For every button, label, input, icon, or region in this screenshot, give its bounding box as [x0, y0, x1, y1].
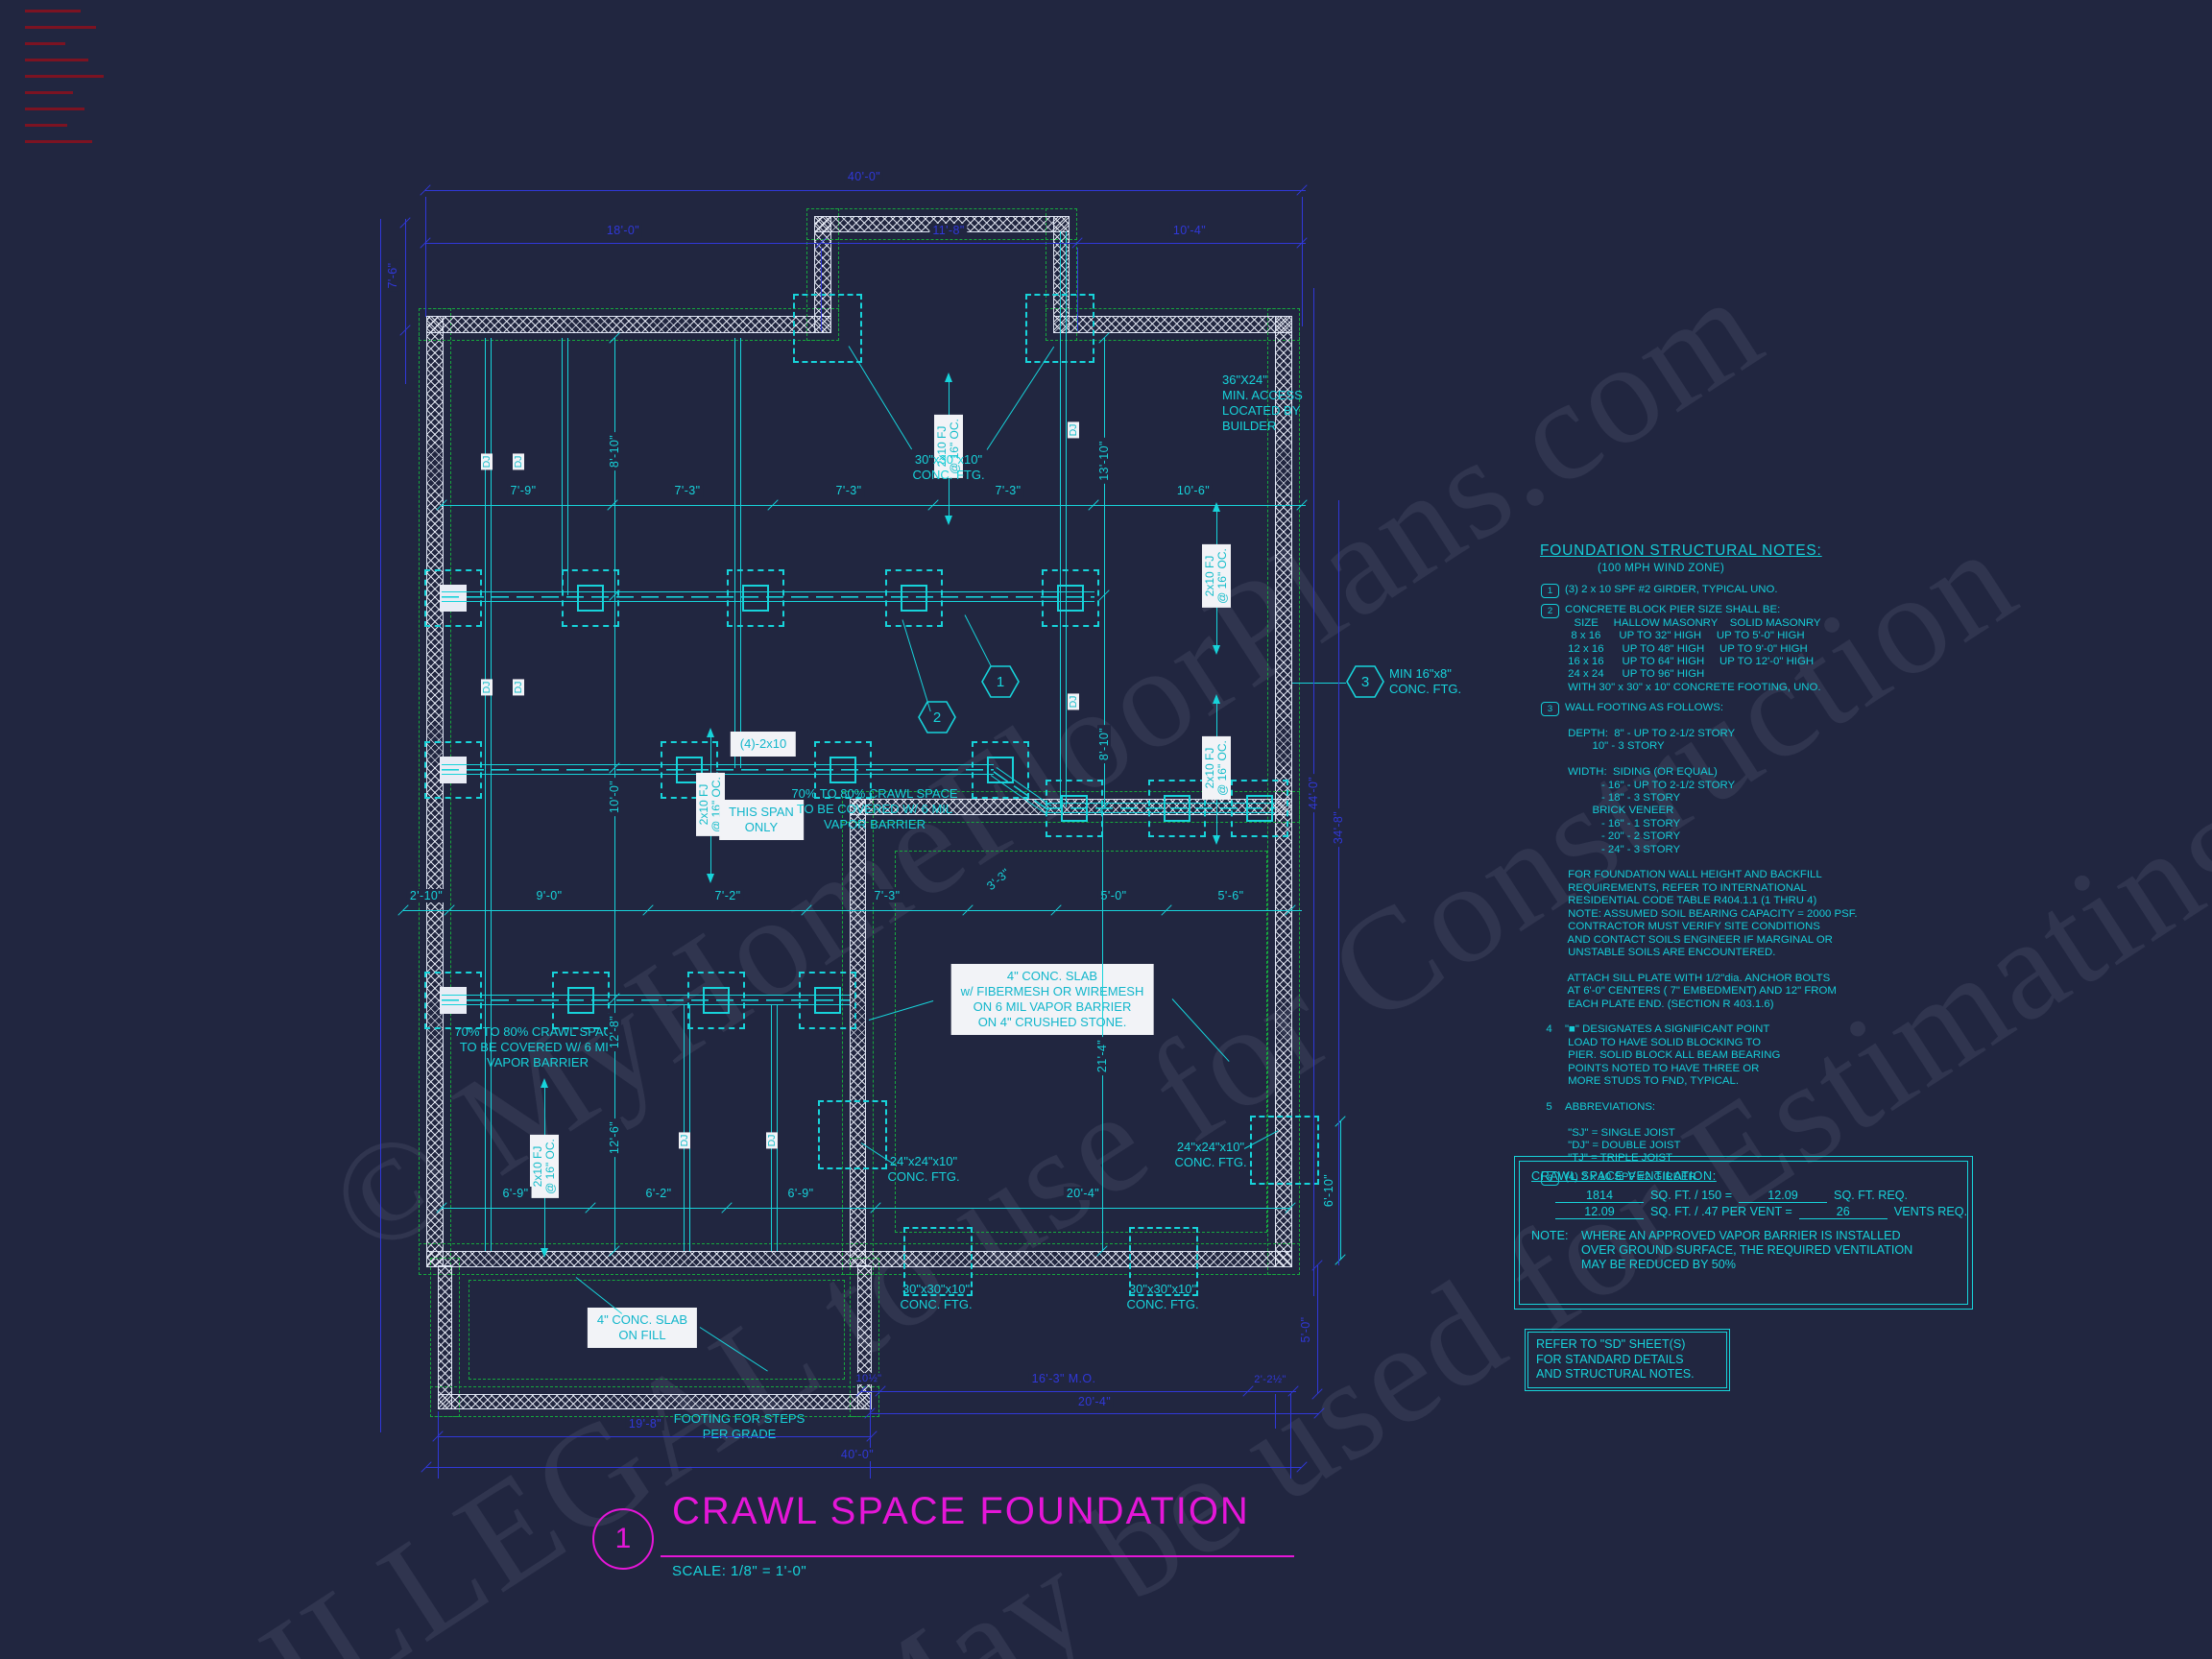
note-text: CONTRACTOR MUST VERIFY SITE CONDITIONS — [1565, 921, 1820, 932]
note-text: POINTS NOTED TO HAVE THREE OR — [1565, 1063, 1759, 1074]
note-line: POINTS NOTED TO HAVE THREE OR — [1565, 1063, 2001, 1075]
dimension-label: 40'-0" — [845, 170, 883, 183]
sqft-req-value: 12.09 — [1739, 1189, 1827, 1203]
footing-24-note: 24"x24"x10" CONC. FTG. — [1174, 1140, 1246, 1170]
dimension-line — [1102, 813, 1103, 1251]
note-text: - 24" - 3 STORY — [1565, 844, 1680, 855]
note-line: ONLY — [729, 820, 794, 835]
note-line: CONC. FTG. — [1389, 682, 1461, 697]
note-line: CONC. FTG. — [1174, 1155, 1246, 1170]
blueprint-sheet: © MyHomeFloorPlans.com ILLEGAL to use fo… — [0, 0, 2212, 1659]
note-text: 24 x 24 UP TO 96" HIGH — [1565, 668, 1704, 680]
note-line: TO BE COVERED W/ 6 MIL — [791, 802, 957, 817]
dimension-label: 2'-10" — [407, 889, 445, 902]
dimension-label: 44'-0" — [1307, 774, 1320, 812]
note-line: 30"x30"x10" — [900, 1282, 972, 1297]
plot-mark — [25, 10, 81, 12]
note-text: 12 x 16 UP TO 48" HIGH UP TO 9'-0" HIGH — [1565, 643, 1808, 655]
dimension-label: 5'-6" — [1215, 889, 1247, 902]
girder-size-tag: (4)-2x10 — [731, 732, 796, 757]
note-line: BUILDER — [1222, 419, 1303, 434]
arrow-up-icon — [541, 1078, 548, 1088]
note-text: "■" DESIGNATES A SIGNIFICANT POINT — [1565, 1023, 1769, 1035]
arrow-up-icon — [707, 728, 714, 737]
note-line: CONC. FTG. — [887, 1169, 959, 1185]
dimension-label: 19'-8" — [626, 1417, 664, 1431]
slab-on-fill-note-box: 4" CONC. SLAB ON FILL — [588, 1308, 697, 1348]
footing-30-note: 30"x30"x10" CONC. FTG. — [912, 452, 984, 483]
note-line: 70% TO 80% CRAWL SPACE — [454, 1024, 620, 1040]
dimension-label: 20'-4" — [1075, 1395, 1114, 1408]
note-line: CONC. FTG. — [900, 1297, 972, 1312]
foundation-wall-slab-left — [850, 799, 866, 1267]
note-text: CONCRETE BLOCK PIER SIZE SHALL BE: — [1565, 604, 1780, 615]
dimension-label: 10'-4" — [1170, 224, 1209, 237]
dimension-label: 12'-6" — [608, 1118, 621, 1157]
notes-subtitle: (100 MPH WIND ZONE) — [1598, 563, 2001, 574]
sd-line: REFER TO "SD" SHEET(S) — [1536, 1337, 1719, 1353]
dimension-label: 7'-3" — [672, 484, 704, 497]
calc-text: SQ. FT. REQ. — [1834, 1189, 1908, 1202]
note-line: - 18" - 3 STORY — [1565, 792, 2001, 805]
callout-hexagon-2: 2 — [917, 700, 957, 734]
dimension-label: 34'-8" — [1332, 808, 1345, 847]
joist-label: 2x10 FJ@ 16" OC. — [530, 1135, 559, 1198]
calc-text: VENTS REQ. — [1894, 1205, 1967, 1218]
note-line: "DJ" = DOUBLE JOIST — [1565, 1140, 2001, 1152]
note-line — [1565, 856, 2001, 869]
note-line: RESIDENTIAL CODE TABLE R404.1.1 (1 THRU … — [1565, 895, 2001, 907]
note-line: MIN. ACCESS — [1222, 388, 1303, 403]
note-line: THIS SPAN — [729, 805, 794, 820]
note-line: WHERE AN APPROVED VAPOR BARRIER IS INSTA… — [1581, 1229, 1912, 1243]
note-line: 24"x24"x10" — [887, 1154, 959, 1169]
dimension-label: 8'-10" — [1097, 725, 1111, 763]
dimension-label: 7'-3" — [872, 889, 903, 902]
dimension-line — [1338, 500, 1339, 1265]
dimension-label: 6'-2" — [643, 1187, 675, 1200]
note-text: DEPTH: 8" - UP TO 2-1/2 STORY — [1565, 728, 1735, 739]
note-line: MORE STUDS TO FND, TYPICAL. — [1565, 1075, 2001, 1088]
note-line: 12 x 16 UP TO 48" HIGH UP TO 9'-0" HIGH — [1565, 643, 2001, 656]
plot-mark — [25, 42, 65, 45]
double-joist-tag: DJ — [1068, 422, 1079, 439]
sqft-value: 12.09 — [1555, 1205, 1644, 1219]
dimension-label: 6'-9" — [785, 1187, 817, 1200]
joist-label-line: @ 16" OC. — [1216, 740, 1229, 796]
joist-line — [771, 1005, 778, 1251]
note-text: 8 x 16 UP TO 32" HIGH UP TO 5'-0" HIGH — [1565, 630, 1805, 641]
plot-mark — [25, 108, 84, 110]
calc-text: SQ. FT. / .47 PER VENT = — [1650, 1205, 1792, 1218]
plot-mark — [25, 124, 67, 127]
girder-beam — [442, 591, 1094, 602]
note-line: - 20" - 2 STORY — [1565, 830, 2001, 843]
dimension-line — [442, 505, 1306, 506]
dimension-line — [405, 219, 406, 384]
note-line: PER GRADE — [674, 1427, 805, 1442]
dimension-label: 6'-10" — [1322, 1171, 1335, 1210]
note-line: WITH 30" x 30" x 10" CONCRETE FOOTING, U… — [1565, 682, 2001, 694]
plot-mark — [25, 75, 104, 78]
dimension-line — [1340, 1121, 1341, 1260]
note-line: 24 x 24 UP TO 96" HIGH — [1565, 668, 2001, 681]
extension-line — [438, 1411, 439, 1479]
note-text: EACH PLATE END. (SECTION R 403.1.6) — [1565, 998, 1774, 1010]
double-joist-tag: DJ — [481, 680, 493, 696]
girder-beam — [442, 995, 850, 1005]
note-line: MAY BE REDUCED BY 50% — [1581, 1258, 1912, 1272]
footing-30-note: 30"x30"x10" CONC. FTG. — [1126, 1282, 1198, 1312]
girder-beam — [1046, 803, 1275, 813]
note-line: CONTRACTOR MUST VERIFY SITE CONDITIONS — [1565, 921, 2001, 933]
note-line: WIDTH: SIDING (OR EQUAL) — [1565, 766, 2001, 779]
note-marker: 4 — [1541, 1023, 1557, 1036]
crawl-cover-note: 70% TO 80% CRAWL SPACE TO BE COVERED W/ … — [791, 786, 957, 832]
note-line: AT 6'-0" CENTERS ( 7" EMBEDMENT) AND 12"… — [1565, 985, 2001, 998]
crawl-space-ventilation-box: CRAWL SPACE VENTILATION: 1814SQ. FT. / 1… — [1514, 1156, 1973, 1310]
arrow-down-icon — [945, 516, 952, 525]
drawing-title: CRAWL SPACE FOUNDATION — [672, 1490, 1250, 1533]
dimension-label: 8'-10" — [608, 432, 621, 470]
note-text: 16 x 16 UP TO 64" HIGH UP TO 12'-0" HIGH — [1565, 656, 1814, 667]
crawl-cover-note: 70% TO 80% CRAWL SPACE TO BE COVERED W/ … — [454, 1024, 620, 1070]
extension-line — [1302, 197, 1303, 326]
sd-sheet-reference-box: REFER TO "SD" SHEET(S) FOR STANDARD DETA… — [1525, 1329, 1730, 1391]
dimension-line — [1317, 1265, 1318, 1394]
note-line: 16 x 16 UP TO 64" HIGH UP TO 12'-0" HIGH — [1565, 656, 2001, 668]
dimension-label: 7'-6" — [386, 260, 399, 292]
note-line: 4"■" DESIGNATES A SIGNIFICANT POINT — [1565, 1023, 2001, 1036]
dimension-label: 13'-10" — [1097, 438, 1111, 484]
leader-line — [987, 347, 1055, 450]
dimension-label: 40'-0" — [838, 1448, 877, 1461]
double-joist-tag: DJ — [513, 680, 524, 696]
leader-line — [902, 619, 931, 711]
leader-line — [849, 346, 913, 449]
note-line: DEPTH: 8" - UP TO 2-1/2 STORY — [1565, 728, 2001, 740]
joist-label: 2x10 FJ@ 16" OC. — [1202, 736, 1231, 800]
note-line: TO BE COVERED W/ 6 MIL — [454, 1040, 620, 1055]
joist-label-line: @ 16" OC. — [544, 1139, 557, 1194]
dimension-label: 16'-3" M.O. — [1029, 1372, 1099, 1385]
note-line: LOCATED BY — [1222, 403, 1303, 419]
note-text: RESIDENTIAL CODE TABLE R404.1.1 (1 THRU … — [1565, 895, 1816, 906]
dimension-label: 10'-6" — [1174, 484, 1213, 497]
note-marker: 2 — [1541, 604, 1559, 618]
dimension-label: 20'-4" — [1064, 1187, 1102, 1200]
note-line: UNSTABLE SOILS ARE ENCOUNTERED. — [1565, 947, 2001, 959]
joist-line — [734, 338, 741, 768]
note-line: PIER. SOLID BLOCK ALL BEAM BEARING — [1565, 1049, 2001, 1062]
note-line: 30"x30"x10" — [1126, 1282, 1198, 1297]
dimension-line — [425, 190, 1306, 191]
double-joist-tag: DJ — [679, 1133, 690, 1149]
double-joist-tag: DJ — [766, 1133, 778, 1149]
footing-24-note: 24"x24"x10" CONC. FTG. — [887, 1154, 959, 1185]
note-line — [1565, 959, 2001, 972]
foundation-wall-top-left — [426, 316, 831, 333]
arrow-down-icon — [707, 874, 714, 883]
note-text: BRICK VENEER — [1565, 805, 1673, 816]
note-text: - 18" - 3 STORY — [1565, 792, 1680, 804]
dimension-label: 9'-0" — [534, 889, 565, 902]
joist-label-line: @ 16" OC. — [1216, 548, 1229, 604]
dimension-label: 6'-9" — [500, 1187, 532, 1200]
slab-note-line: w/ FIBERMESH OR WIREMESH — [961, 984, 1144, 999]
note-text: "SJ" = SINGLE JOIST — [1565, 1127, 1675, 1139]
extension-line — [1275, 1394, 1276, 1429]
joist-label: 2x10 FJ@ 16" OC. — [1202, 544, 1231, 608]
access-note: 36"X24" MIN. ACCESS LOCATED BY BUILDER — [1222, 373, 1303, 434]
slab-note-line: 4" CONC. SLAB — [597, 1312, 687, 1328]
sd-box-inner: REFER TO "SD" SHEET(S) FOR STANDARD DETA… — [1527, 1332, 1727, 1388]
joist-line — [1060, 231, 1067, 807]
vents-req-value: 26 — [1799, 1205, 1887, 1219]
note-line: FOOTING FOR STEPS — [674, 1411, 805, 1427]
dimension-label: 2'-2½" — [1251, 1374, 1288, 1385]
dimension-line — [438, 1436, 872, 1437]
dimension-line — [380, 219, 381, 1432]
note-line: - 16" - 1 STORY — [1565, 818, 2001, 830]
joist-line — [562, 338, 568, 595]
extension-line — [821, 248, 822, 331]
note-line: 8 x 16 UP TO 32" HIGH UP TO 5'-0" HIGH — [1565, 630, 2001, 642]
title-underline — [661, 1555, 1294, 1557]
dimension-label: 10½" — [854, 1373, 885, 1384]
note-line: ATTACH SILL PLATE WITH 1/2"dia. ANCHOR B… — [1565, 973, 2001, 985]
note-line: "SJ" = SINGLE JOIST — [1565, 1127, 2001, 1140]
note-text: - 16" - 1 STORY — [1565, 818, 1680, 829]
note-text: PIER. SOLID BLOCK ALL BEAM BEARING — [1565, 1049, 1780, 1061]
plot-mark — [25, 91, 73, 94]
dimension-label: 5'-0" — [1299, 1314, 1312, 1346]
footing-outline — [1250, 1116, 1319, 1185]
note-line: - 16" - UP TO 2-1/2 STORY — [1565, 780, 2001, 792]
note-line — [1565, 1114, 2001, 1126]
dimension-label: 7'-3" — [833, 484, 865, 497]
dimension-line — [442, 1208, 1290, 1209]
note-line: 10" - 3 STORY — [1565, 740, 2001, 753]
slab-note-line: ON 4" CRUSHED STONE. — [961, 1015, 1144, 1030]
callout-number: 3 — [1345, 664, 1385, 699]
note-text: FOR FOUNDATION WALL HEIGHT AND BACKFILL — [1565, 869, 1822, 880]
note-text: WALL FOOTING AS FOLLOWS: — [1565, 702, 1723, 713]
note-line: FOR FOUNDATION WALL HEIGHT AND BACKFILL — [1565, 869, 2001, 881]
note-line: NOTE: ASSUMED SOIL BEARING CAPACITY = 20… — [1565, 908, 2001, 921]
note-line: REQUIREMENTS, REFER TO INTERNATIONAL — [1565, 882, 2001, 895]
sd-line: AND STRUCTURAL NOTES. — [1536, 1367, 1719, 1382]
porch-wall-bottom — [438, 1394, 872, 1409]
ventilation-title: CRAWL SPACE VENTILATION: — [1531, 1169, 1956, 1183]
note-line: CONC. FTG. — [912, 468, 984, 483]
dimension-label: 7'-3" — [993, 484, 1024, 497]
footing-30-note: 30"x30"x10" CONC. FTG. — [900, 1282, 972, 1312]
note-line: LOAD TO HAVE SOLID BLOCKING TO — [1565, 1037, 2001, 1049]
callout-number: 1 — [980, 664, 1021, 699]
note-text: SIZE HALLOW MASONRY SOLID MASONRY — [1565, 617, 1820, 629]
note-line: - 24" - 3 STORY — [1565, 844, 2001, 856]
extension-line — [425, 197, 426, 317]
arrow-up-icon — [945, 373, 952, 382]
dimension-line — [425, 243, 1306, 244]
slab-note-line: ON 6 MIL VAPOR BARRIER — [961, 999, 1144, 1015]
double-joist-tag: DJ — [481, 454, 493, 470]
note-text: (3) 2 x 10 SPF #2 GIRDER, TYPICAL UNO. — [1565, 584, 1778, 595]
sqft-value: 1814 — [1555, 1189, 1644, 1203]
note-line: OVER GROUND SURFACE, THE REQUIRED VENTIL… — [1581, 1243, 1912, 1258]
arrow-down-icon — [1213, 835, 1220, 845]
calc-text: SQ. FT. / 150 = — [1650, 1189, 1732, 1202]
note-line: 36"X24" — [1222, 373, 1303, 388]
note-line: AND CONTACT SOILS ENGINEER IF MARGINAL O… — [1565, 934, 2001, 947]
dimension-label: 12'-8" — [608, 1013, 621, 1051]
joist-line — [485, 338, 492, 1251]
note-marker: 5 — [1541, 1101, 1557, 1114]
dimension-label: 11'-8" — [929, 224, 967, 237]
dimension-line — [403, 910, 1302, 911]
extension-line — [1290, 1394, 1291, 1479]
note-line: 24"x24"x10" — [1174, 1140, 1246, 1155]
note-line: 1(3) 2 x 10 SPF #2 GIRDER, TYPICAL UNO. — [1565, 584, 2001, 596]
note-line: 30"x30"x10" — [912, 452, 984, 468]
note-line: MIN 16"x8" — [1389, 666, 1461, 682]
note-text: AND CONTACT SOILS ENGINEER IF MARGINAL O… — [1565, 934, 1833, 946]
note-line: 2CONCRETE BLOCK PIER SIZE SHALL BE: — [1565, 604, 2001, 616]
note-text: - 16" - UP TO 2-1/2 STORY — [1565, 780, 1735, 791]
note-text: WITH 30" x 30" x 10" CONCRETE FOOTING, U… — [1565, 682, 1821, 693]
note-text: AT 6'-0" CENTERS ( 7" EMBEDMENT) AND 12"… — [1565, 985, 1837, 997]
callout-hexagon-3: 3 — [1345, 664, 1385, 699]
note-line: 3WALL FOOTING AS FOLLOWS: — [1565, 702, 2001, 714]
plot-mark — [25, 26, 96, 29]
arrow-down-icon — [1213, 645, 1220, 655]
sd-line: FOR STANDARD DETAILS — [1536, 1353, 1719, 1368]
ventilation-calc-row: 12.09SQ. FT. / .47 PER VENT =26VENTS REQ… — [1549, 1205, 1956, 1219]
note-line — [1565, 715, 2001, 728]
leader-line — [965, 614, 992, 666]
note-line: EACH PLATE END. (SECTION R 403.1.6) — [1565, 998, 2001, 1011]
note-line: BRICK VENEER — [1565, 805, 2001, 817]
ventilation-box-inner: CRAWL SPACE VENTILATION: 1814SQ. FT. / 1… — [1519, 1161, 1968, 1305]
arrow-up-icon — [1213, 502, 1220, 512]
note-text: UNSTABLE SOILS ARE ENCOUNTERED. — [1565, 947, 1775, 958]
dimension-label: 10'-0" — [608, 778, 621, 816]
notes-title: FOUNDATION STRUCTURAL NOTES: — [1540, 542, 2001, 560]
note-text: LOAD TO HAVE SOLID BLOCKING TO — [1565, 1037, 1761, 1048]
note-line — [1565, 1011, 2001, 1023]
note-text: REQUIREMENTS, REFER TO INTERNATIONAL — [1565, 882, 1807, 894]
note-label: NOTE: — [1531, 1229, 1581, 1272]
note-text: WIDTH: SIDING (OR EQUAL) — [1565, 766, 1718, 778]
note-line — [1565, 754, 2001, 766]
note-marker: 3 — [1541, 702, 1559, 716]
joist-line — [684, 1005, 690, 1251]
steps-footing-note: FOOTING FOR STEPS PER GRADE — [674, 1411, 805, 1442]
dimension-label: 7'-2" — [712, 889, 744, 902]
note-line: VAPOR BARRIER — [454, 1055, 620, 1070]
plot-mark — [25, 59, 88, 61]
foundation-structural-notes: FOUNDATION STRUCTURAL NOTES: (100 MPH WI… — [1540, 542, 2001, 1184]
slab-note-line: ON FILL — [597, 1328, 687, 1343]
note-text: "DJ" = DOUBLE JOIST — [1565, 1140, 1680, 1151]
footing-outline — [818, 1100, 887, 1169]
arrow-up-icon — [1213, 694, 1220, 704]
double-joist-tag: DJ — [1068, 694, 1079, 710]
double-joist-tag: DJ — [513, 454, 524, 470]
slab-note-box: 4" CONC. SLAB w/ FIBERMESH OR WIREMESH O… — [951, 964, 1154, 1035]
note-line: VAPOR BARRIER — [791, 817, 957, 832]
ventilation-note: NOTE: WHERE AN APPROVED VAPOR BARRIER IS… — [1531, 1229, 1956, 1272]
note-marker: 1 — [1541, 584, 1559, 598]
note-text: 10" - 3 STORY — [1565, 740, 1665, 752]
note-body: WHERE AN APPROVED VAPOR BARRIER IS INSTA… — [1581, 1229, 1912, 1272]
arrow-down-icon — [541, 1248, 548, 1258]
dimension-label: 7'-9" — [508, 484, 540, 497]
min-footing-note: MIN 16"x8" CONC. FTG. — [1389, 666, 1461, 697]
callout-hexagon-1: 1 — [980, 664, 1021, 699]
note-line: 5ABBREVIATIONS: — [1565, 1101, 2001, 1114]
ventilation-calc-row: 1814SQ. FT. / 150 =12.09SQ. FT. REQ. — [1549, 1189, 1956, 1203]
dimension-label: 18'-0" — [604, 224, 642, 237]
note-line: 70% TO 80% CRAWL SPACE — [791, 786, 957, 802]
note-line: SIZE HALLOW MASONRY SOLID MASONRY — [1565, 617, 2001, 630]
drawing-number-circle: 1 — [592, 1508, 654, 1570]
dimension-line — [870, 1413, 1319, 1414]
slab-note-line: 4" CONC. SLAB — [961, 969, 1144, 984]
plot-mark — [25, 140, 92, 143]
drawing-scale: SCALE: 1/8" = 1'-0" — [672, 1563, 806, 1579]
note-line — [1565, 1088, 2001, 1100]
drawing-number: 1 — [615, 1523, 632, 1555]
note-text: NOTE: ASSUMED SOIL BEARING CAPACITY = 20… — [1565, 908, 1858, 920]
note-text: ATTACH SILL PLATE WITH 1/2"dia. ANCHOR B… — [1565, 973, 1830, 984]
note-text: MORE STUDS TO FND, TYPICAL. — [1565, 1075, 1739, 1087]
dimension-label: 21'-4" — [1095, 1037, 1109, 1075]
note-line: CONC. FTG. — [1126, 1297, 1198, 1312]
dimension-line — [426, 1467, 1302, 1468]
note-text: - 20" - 2 STORY — [1565, 830, 1680, 842]
callout-number: 2 — [917, 700, 957, 734]
extension-line — [1077, 248, 1078, 331]
dimension-line — [861, 1391, 1296, 1392]
note-text: ABBREVIATIONS: — [1565, 1101, 1655, 1113]
